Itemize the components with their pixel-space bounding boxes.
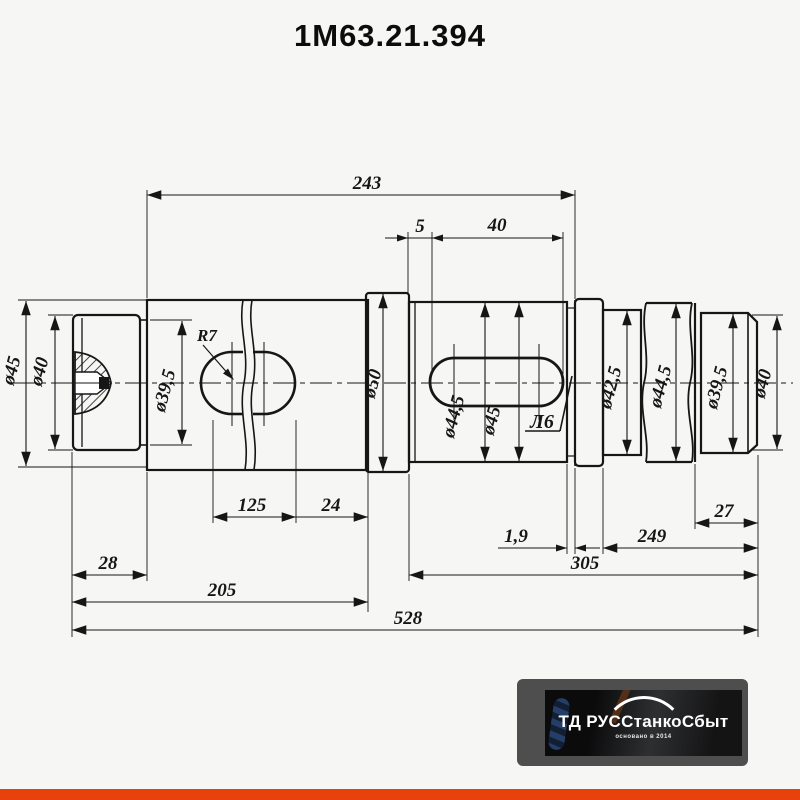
dim-205: 205 bbox=[207, 580, 237, 601]
dia-39-5-right: ø39,5 bbox=[701, 364, 733, 412]
dia-42-5: ø42,5 bbox=[595, 364, 627, 412]
logo-company-name: ТД РУССтанкоСбыт bbox=[545, 712, 742, 732]
dia-40-left: ø40 bbox=[26, 355, 54, 389]
center-hole-detail bbox=[75, 352, 111, 414]
keyway-section bbox=[409, 302, 567, 462]
dia-44-5-right: ø44,5 bbox=[645, 363, 677, 411]
dim-1-9: 1,9 bbox=[504, 526, 528, 547]
logo-photo-background: ТД РУССтанкоСбыт основано в 2014 bbox=[545, 690, 742, 756]
dimension-lines-top bbox=[147, 190, 575, 374]
dim-528: 528 bbox=[394, 608, 423, 629]
dia-39-5-left: ø39,5 bbox=[149, 367, 181, 415]
dim-5: 5 bbox=[415, 216, 425, 237]
keyway-left bbox=[201, 342, 295, 426]
break-line bbox=[251, 300, 256, 470]
dim-40: 40 bbox=[487, 215, 508, 236]
break-line bbox=[242, 300, 247, 470]
dim-243: 243 bbox=[352, 173, 382, 194]
dia-45-keyway: ø45 bbox=[478, 404, 506, 438]
dim-r7: R7 bbox=[196, 326, 218, 345]
dim-28: 28 bbox=[98, 553, 119, 574]
dia-40-right: ø40 bbox=[749, 367, 777, 401]
dim-125: 125 bbox=[238, 495, 267, 516]
main-body bbox=[147, 300, 368, 470]
footer-accent-bar bbox=[0, 789, 800, 800]
datum-label: Л6 bbox=[529, 411, 554, 433]
dim-249: 249 bbox=[637, 526, 667, 547]
dim-27: 27 bbox=[714, 501, 736, 522]
company-logo: ТД РУССтанкоСбыт основано в 2014 bbox=[517, 679, 748, 766]
dia-50: ø50 bbox=[359, 367, 387, 401]
logo-tagline: основано в 2014 bbox=[545, 734, 742, 740]
dim-305: 305 bbox=[570, 553, 600, 574]
dim-24: 24 bbox=[321, 495, 341, 516]
dia-44-5-keyway: ø44,5 bbox=[438, 393, 470, 441]
